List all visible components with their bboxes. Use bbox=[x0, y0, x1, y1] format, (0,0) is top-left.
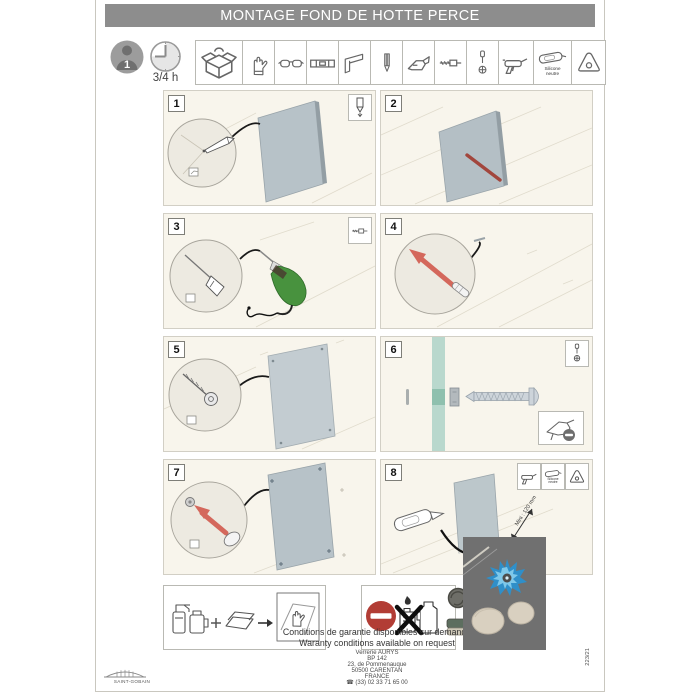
step-3-panel: 3 bbox=[163, 213, 376, 329]
spacer bbox=[450, 388, 459, 406]
glass-panel bbox=[268, 344, 335, 449]
callout-line bbox=[244, 490, 269, 506]
step-5-panel: 5 bbox=[163, 336, 376, 452]
address-phone: ☎ (33) 02 33 71 65 00 bbox=[163, 680, 591, 686]
cutter-knife-icon bbox=[402, 40, 435, 85]
step-number: 4 bbox=[385, 218, 402, 235]
square-icon bbox=[338, 40, 371, 85]
duration-label: 3/4 h bbox=[143, 72, 188, 84]
callout-line bbox=[232, 123, 260, 137]
doc-reference: 223/21 bbox=[585, 648, 591, 666]
silicone-tube bbox=[393, 504, 445, 532]
silicone-label-line2: neutre bbox=[544, 71, 560, 76]
brand-name: SAINT-GOBAIN bbox=[102, 679, 162, 684]
caulk-gun-icon bbox=[517, 463, 541, 490]
toolbox-icon bbox=[195, 40, 243, 85]
silicone-cartridge-icon: Silicone neutre bbox=[533, 40, 572, 85]
safety-glasses-icon bbox=[274, 40, 307, 85]
spirit-level-icon bbox=[306, 40, 339, 85]
hob-detail-inset bbox=[463, 537, 546, 650]
wall-anchor bbox=[474, 238, 485, 241]
screw bbox=[466, 388, 539, 405]
step-number: 2 bbox=[385, 95, 402, 112]
arrow-head bbox=[267, 619, 273, 627]
step-7-panel: 7 bbox=[163, 459, 376, 575]
saint-gobain-logo: SAINT-GOBAIN bbox=[102, 666, 162, 684]
page-title: MONTAGE FOND DE HOTTE PERCE bbox=[220, 8, 479, 24]
zoom-circle bbox=[395, 234, 475, 314]
step-number: 1 bbox=[168, 95, 185, 112]
caulk-gun-icon bbox=[498, 40, 534, 85]
silicone-label-line2: neutre bbox=[547, 481, 558, 484]
work-gloves-icon bbox=[242, 40, 275, 85]
step-6-panel: 6 bbox=[380, 336, 593, 452]
callout-line bbox=[471, 242, 480, 258]
persons-count: 1 bbox=[124, 59, 130, 71]
step-4-illustration bbox=[381, 214, 592, 328]
step-number: 8 bbox=[385, 464, 402, 481]
step-2-panel: 2 bbox=[380, 90, 593, 206]
pencil-icon bbox=[370, 40, 403, 85]
min-distance-label: Mini : 120 mm bbox=[514, 495, 538, 528]
step-number: 3 bbox=[168, 218, 185, 235]
pencil-icon bbox=[348, 94, 372, 121]
step-1-illustration bbox=[164, 91, 375, 205]
scraper-icon bbox=[565, 463, 589, 490]
step-1-panel: 1 bbox=[163, 90, 376, 206]
power-cord bbox=[247, 308, 277, 317]
drill-bit-icon bbox=[348, 217, 372, 244]
step-3-illustration bbox=[164, 214, 375, 328]
zoom-circle bbox=[170, 240, 242, 312]
screwdriver-icon bbox=[466, 40, 499, 85]
no-electric-screwdriver-icon bbox=[538, 411, 584, 445]
step-number: 5 bbox=[168, 341, 185, 358]
instruction-sheet: MONTAGE FOND DE HOTTE PERCE 1 3/4 h bbox=[95, 0, 605, 692]
gas-flame-icon bbox=[486, 559, 527, 596]
step-2-illustration bbox=[381, 91, 592, 205]
min-distance-dimension: Mini : 120 mm bbox=[511, 495, 538, 540]
step-5-illustration bbox=[164, 337, 375, 451]
tools-row: Silicone neutre bbox=[196, 40, 606, 85]
step-number: 7 bbox=[168, 464, 185, 481]
zoom-circle bbox=[169, 359, 241, 431]
pot bbox=[508, 602, 534, 624]
duration-clock-icon bbox=[149, 40, 182, 73]
silicone-cartridge-icon: Silicone neutre bbox=[541, 463, 565, 490]
glass-panel bbox=[258, 101, 323, 202]
bridge-icon bbox=[102, 666, 148, 679]
callout-line bbox=[240, 250, 260, 259]
washer bbox=[205, 393, 218, 406]
persons-icon: 1 bbox=[109, 39, 145, 75]
glass-panel bbox=[268, 463, 334, 570]
page-title-bar: MONTAGE FOND DE HOTTE PERCE bbox=[105, 4, 595, 27]
scraper-icon bbox=[571, 40, 606, 85]
screwdriver-icon bbox=[565, 340, 589, 367]
anchor-section bbox=[406, 389, 409, 405]
drill-bit-icon bbox=[434, 40, 467, 85]
step-7-illustration bbox=[164, 460, 375, 574]
step-number: 6 bbox=[385, 341, 402, 358]
screenshot: MONTAGE FOND DE HOTTE PERCE 1 3/4 h bbox=[0, 0, 700, 700]
step-4-panel: 4 bbox=[380, 213, 593, 329]
callout-line bbox=[238, 376, 269, 387]
